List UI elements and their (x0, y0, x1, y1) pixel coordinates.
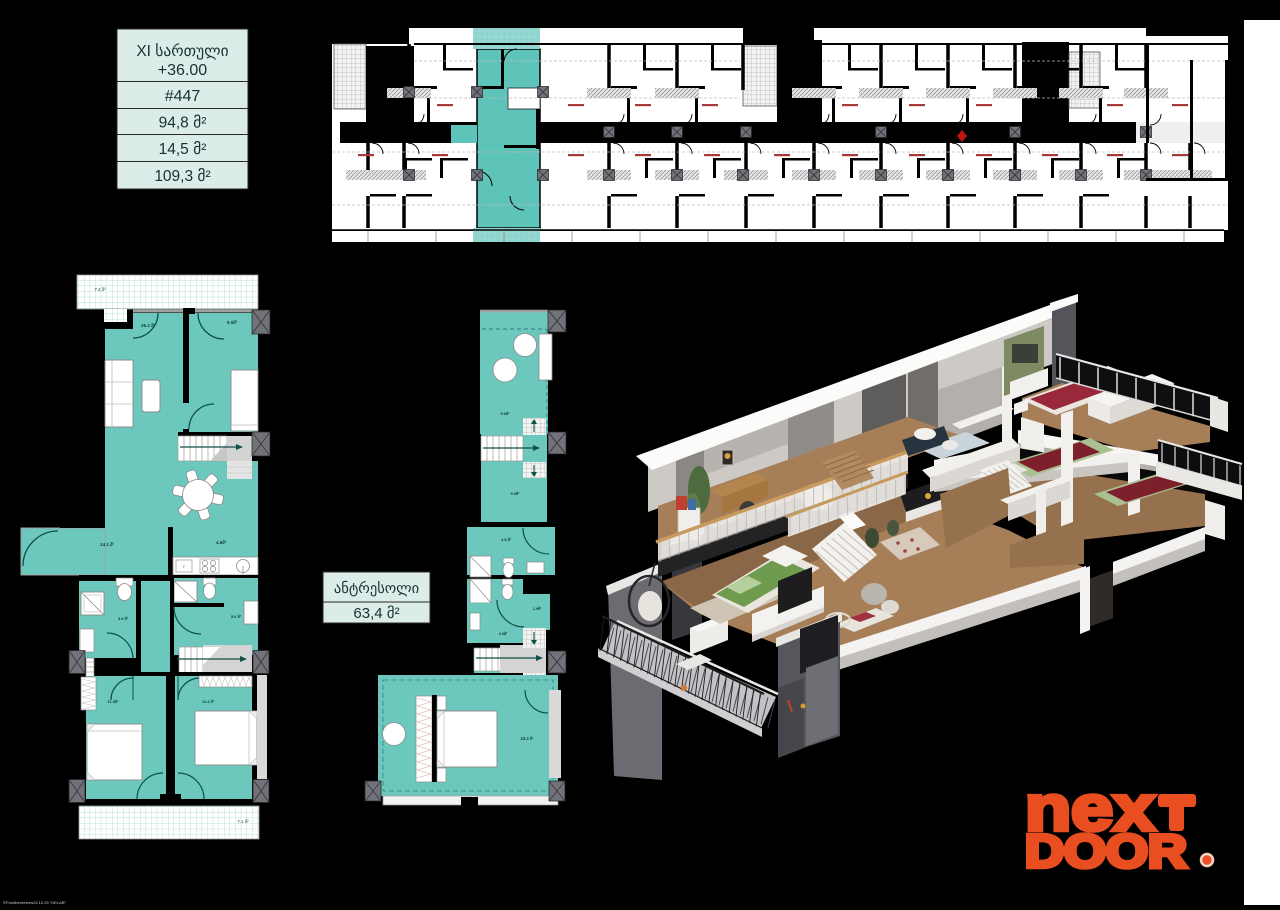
svg-text:1.9მ²: 1.9მ² (533, 606, 542, 611)
svg-text:5.0მ²: 5.0მ² (511, 491, 521, 496)
svg-text:ანტრესოლი: ანტრესოლი (334, 580, 420, 597)
svg-text:63,4 მ²: 63,4 მ² (353, 605, 399, 622)
svg-text:14.1 მ²: 14.1 მ² (100, 541, 114, 547)
svg-text:#447: #447 (165, 88, 201, 105)
svg-text:9.6მ²: 9.6მ² (501, 411, 511, 416)
svg-text:4.5მ²: 4.5მ² (216, 539, 227, 545)
svg-text:+36.00: +36.00 (158, 62, 207, 79)
svg-text:©Pondberriesres23.10.23 "GELAB: ©Pondberriesres23.10.23 "GELAB" (3, 900, 67, 905)
svg-text:3.9 მ²: 3.9 მ² (118, 616, 129, 621)
svg-text:5.6 მ²: 5.6 მ² (231, 614, 242, 619)
svg-text:11.4 მ²: 11.4 მ² (202, 699, 215, 704)
svg-text:7.4 მ²: 7.4 მ² (94, 286, 106, 292)
svg-text:DOOR: DOOR (1025, 825, 1187, 877)
svg-text:109,3 მ²: 109,3 მ² (154, 167, 210, 185)
svg-text:14,5 მ²: 14,5 მ² (159, 140, 207, 158)
svg-text:94,8 მ²: 94,8 მ² (159, 114, 207, 132)
svg-text:7.1 მ²: 7.1 მ² (237, 818, 249, 824)
svg-text:11.5მ²: 11.5მ² (108, 699, 120, 704)
svg-text:23.3 მ²: 23.3 მ² (521, 736, 535, 741)
svg-text:4.5 მ²: 4.5 მ² (501, 537, 512, 542)
svg-text:25.2 მ²: 25.2 მ² (141, 322, 155, 328)
svg-text:XI სართული: XI სართული (136, 42, 228, 60)
svg-text:9.0მ²: 9.0მ² (227, 319, 238, 325)
svg-text:3.0მ²: 3.0მ² (499, 631, 508, 636)
